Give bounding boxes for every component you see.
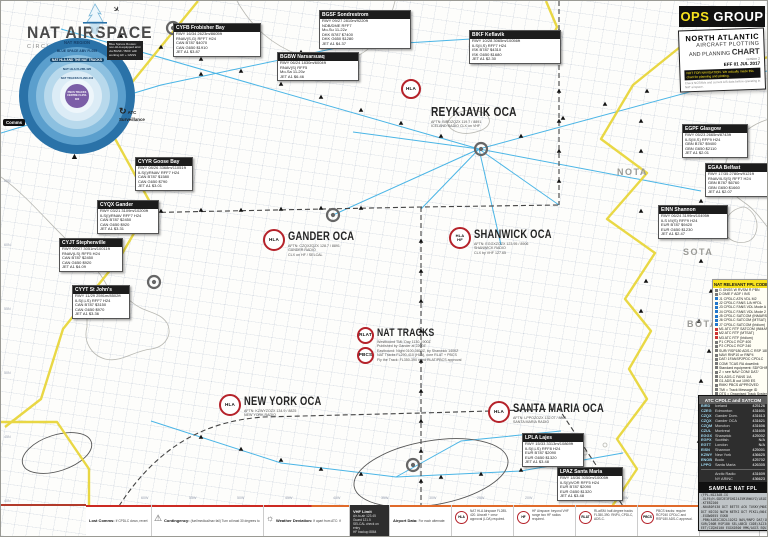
waypoint-triangle <box>159 209 164 213</box>
diagram-ring-label-1: BLUE SPACE ABV FL055 <box>57 49 97 53</box>
oca-subline: CLX by VHF 127.65 <box>474 251 569 255</box>
oca-text-block: GANDER OCAAFTN: CZQXZQZX 128.7 / 8891GAN… <box>288 229 373 257</box>
waypoint-triangle <box>645 89 650 93</box>
oca-text-block: SHANWICK OCAAFTN: EGGXZOZX 123.95 / 8906… <box>474 227 574 255</box>
graticule-lon-label: 50W <box>237 496 244 500</box>
badge-text: HF <box>457 238 463 242</box>
code-bullet-icon <box>715 332 718 335</box>
oca-badges: HLA <box>263 229 285 251</box>
airport-box-header: EGPF Glasgow <box>683 125 747 133</box>
badge-text: PBCS <box>643 516 652 519</box>
airport-box-line: JET A1 $4.37 <box>320 42 410 48</box>
oca-subtext: AFTN: BIRDZQZX 119.7 / 8891ICELAND RADIO… <box>431 120 526 129</box>
airport-info-box: LPLA LajesRWY 15/33 3313m/10869ftILS(I,L… <box>522 433 584 467</box>
diagram-ring-label-4: NAT TRACKS FL290-410 <box>61 76 93 80</box>
waypoint-triangle <box>199 208 204 212</box>
badge-text: HLA <box>225 403 235 408</box>
airport-box-header: CYYT St John's <box>73 286 129 294</box>
code-bullet-icon <box>715 319 718 322</box>
cpdlc-number: 426305 <box>750 463 765 468</box>
oca-title: NEW YORK OCA <box>244 394 322 408</box>
hla-badge: HLA <box>263 229 285 251</box>
blue-spruce-note: Blue Spruce Routes:non-HLA equipped airc… <box>107 41 143 60</box>
vor-center-dot <box>331 213 334 216</box>
waypoint-triangle <box>419 479 424 483</box>
badge-text: RLAT <box>581 516 589 519</box>
oca-text-block: NAT TRACKSWestbound TMI: Day 1130-1900ZP… <box>377 327 461 362</box>
waypoint-triangle <box>419 419 424 423</box>
waypoint-triangle <box>279 82 284 86</box>
cpdlc-panel-title: ATC CPDLC and SATCOM <box>699 396 767 404</box>
fpl-code-item: DAT/ 1FANSP2PDC CPDLC <box>713 357 767 361</box>
airport-info-box: BIKF KeflavikRWY 10/28 3065m/10056ftILS(… <box>469 30 561 64</box>
chart-legend: Lost Comms: If CPDLC down, revert to HF.… <box>86 505 768 537</box>
rlat-badge: RLAT <box>357 327 374 344</box>
oca-subline: SANTA MARIA RADIO <box>513 420 608 424</box>
airport-box-header: CYFB Frobisher Bay <box>174 24 260 32</box>
airport-box-line: JET A1 $3.48 <box>523 460 583 466</box>
waypoint-triangle <box>419 269 424 273</box>
waypoint-triangle <box>557 119 562 123</box>
legend-badge-rlat: RLATRLatSM: half-degree tracks FL350-390… <box>576 505 638 537</box>
airport-box-line: JET A1 $2.30 <box>470 57 560 63</box>
code-bullet-icon <box>715 388 718 391</box>
airport-box-line: JET A1 $3.87 <box>174 50 260 56</box>
fpl-code-item: J6 CPDLC SATCOM (MTSAT) <box>713 318 767 322</box>
fpl-codes-panel: NAT RELEVANT FPL CODES G GNSS W RVSM R P… <box>712 279 768 397</box>
oca-subtext: AFTN: LPPOZOZX 132.07 / 8861SANTA MARIA … <box>513 416 608 425</box>
code-bullet-icon <box>715 366 718 369</box>
vhf-box-line: HF backup 8864 <box>353 530 386 534</box>
cpdlc-row: NY ARINC436623 <box>699 477 767 482</box>
graticule-lat-label: 40N <box>4 499 11 503</box>
code-bullet-icon <box>715 297 718 300</box>
oca-badges: HLA <box>488 401 510 423</box>
airport-box-line: JET A1 $2.01 <box>683 151 747 157</box>
airport-box-header: CYYR Goose Bay <box>136 158 192 166</box>
cpdlc-satcom-panel: ATC CPDLC and SATCOM BIRDIceland425126CZ… <box>698 395 768 483</box>
graticule-lon-label: 25W <box>477 496 484 500</box>
waypoint-triangle <box>419 299 424 303</box>
waypoint-triangle <box>603 102 608 106</box>
airport-info-box: BGSF SondrestromRWY 09/27 2810m/9220ftND… <box>319 10 411 49</box>
graticule-lat-label: 60N <box>4 243 11 247</box>
oca-label-newyork: HLANEW YORK OCAAFTN: KZWYZOZX 134.9 / 88… <box>219 394 343 418</box>
airport-box-header: EINN Shannon <box>659 206 727 214</box>
waypoint-triangle <box>239 447 244 451</box>
graticule-lon-label: 20W <box>525 496 532 500</box>
hla-badge-icon: HLA <box>455 511 468 524</box>
map-canvas: NAT AIRSPACE CIRCLE OF ENTRY ✈ PBCS TRAC… <box>1 1 767 536</box>
badge-text: HLA <box>406 87 416 92</box>
oca-label-gander: HLAGANDER OCAAFTN: CZQXZQZX 128.7 / 8891… <box>263 229 373 257</box>
airport-box-line: JET A1 $3.01 <box>136 184 192 190</box>
legend-vhf-box: VHF LimitAir-to-air 123.45Guard 121.5SEL… <box>350 505 390 537</box>
waypoint-triangle <box>319 95 324 99</box>
airport-info-box: CYQX GanderRWY 03/21 3109m/10200ftILS(I)… <box>97 200 159 234</box>
oca-title: GANDER OCA <box>288 229 354 243</box>
oca-subtext: AFTN: KZWYZOZX 134.9 / 8825NEW YORK RADI… <box>244 409 339 418</box>
waypoint-triangle <box>279 207 284 211</box>
graticule-lon-label: 45W <box>285 496 292 500</box>
sample-fpl-title: SAMPLE NAT FPL <box>699 484 767 493</box>
oca-title: SANTA MARIA OCA <box>513 401 604 415</box>
airport-info-box: CYFB Frobisher BayRWY 16/34 2623m/8605ft… <box>173 23 261 57</box>
spiral-icon: ↻ <box>119 106 127 116</box>
airport-info-box: CYYT St John'sRWY 11/29 2591m/8502ftILS(… <box>72 285 130 319</box>
chart-title-card: NORTH ATLANTIC AIRCRAFT PLOTTING AND PLA… <box>678 28 766 93</box>
vhf-box-line: SELCAL check on entry <box>353 522 386 530</box>
oca-subline: Fly the Track: FL350-390 need RLAT/PBCS … <box>377 358 461 362</box>
legend-badge-hla: HLANAT HLA Airspace FL285-420. Aircraft … <box>452 505 514 537</box>
diagram-ring-label-2: NAT HLA AND THE NAT TRACKS <box>50 58 104 62</box>
coastline-ireland <box>725 207 757 243</box>
graticule-lon-label: 60W <box>141 496 148 500</box>
hf-badge-icon: HF <box>517 511 530 524</box>
waypoint-triangle <box>699 199 704 203</box>
fpl-line: EET/CZQX0100 EGGX0300 RMK/AGCS EQUIPPED) <box>699 526 767 530</box>
code-bullet-icon <box>715 341 718 344</box>
waypoint-triangle <box>399 121 404 125</box>
hla-badge: HLA <box>219 394 241 416</box>
graticule-lon-label: 40W <box>333 496 340 500</box>
oca-label-shanwick: HLAHFSHANWICK OCAAFTN: EGGXZOZX 123.95 /… <box>449 227 574 255</box>
airport-box-line: JET A1 $2.07 <box>706 190 768 196</box>
airport-info-box: CYYR Goose BayRWY 08/26 3368m/11051ftILS… <box>135 157 193 191</box>
cpdlc-row: LPPOSanta Maria426305 <box>699 463 767 468</box>
legend-contingency: ⚠Contingency: (fuel/medical/nav fail) Tu… <box>152 505 264 537</box>
code-bullet-icon <box>715 358 718 361</box>
waypoint-triangle <box>639 119 644 123</box>
fpl-code-item: J3 CPDLC FANS VDL Mode A <box>713 305 767 309</box>
airport-box-header: BGBW Narsarsuaq <box>278 53 358 61</box>
legend-title: Lost Comms: <box>89 518 116 523</box>
waypoint-triangle <box>419 449 424 453</box>
waypoint-triangle <box>439 134 444 138</box>
hla-standalone-badge-wrap: HLA <box>401 79 421 99</box>
legend-badge-text: NAT HLA Airspace FL285-420. Aircraft + c… <box>470 509 510 521</box>
airport-box-header: BIKF Keflavik <box>470 31 560 39</box>
oca-text-block: REYKJAVIK OCAAFTN: BIRDZQZX 119.7 / 8891… <box>431 104 541 129</box>
logo-group-text: GROUP <box>713 9 763 24</box>
airport-box-header: CYQX Gander <box>98 201 158 209</box>
oca-badges: RLATPBCS <box>357 327 374 364</box>
code-bullet-icon <box>715 336 718 339</box>
code-bullet-icon <box>715 384 718 387</box>
atc-surveillance-label: ↻ ATC Surveillance <box>119 106 155 122</box>
legend-badge-hf: HFHF Airspace: beyond VHF range two HF r… <box>514 505 576 537</box>
oca-badges: HLA <box>219 394 241 416</box>
graticule-lat-label: 45N <box>4 435 11 439</box>
waypoint-triangle <box>699 259 704 263</box>
graticule-lat-label: 65N <box>4 179 11 183</box>
waypoint-triangle <box>239 69 244 73</box>
badge-text: HLA <box>458 516 465 519</box>
diagram-ring-label-3: NAT HLA FL285-420 <box>63 67 91 71</box>
waypoint-triangle <box>199 72 204 76</box>
code-bullet-icon <box>715 371 718 374</box>
airport-box-line: JET A1 $4.09 <box>60 265 122 271</box>
note-line: working HF + GNSS <box>109 54 141 58</box>
code-bullet-icon <box>715 345 718 348</box>
region-label-nota: NOTA <box>617 167 648 177</box>
airport-data-title: Airport Data: <box>393 518 419 523</box>
oca-title: SHANWICK OCA <box>474 227 552 241</box>
airport-info-box: CYJT StephenvilleRWY 09/27 3051m/10011ft… <box>59 238 123 272</box>
entry-arrow-icon: ▲ <box>70 151 79 161</box>
waypoint-triangle <box>644 279 649 283</box>
airport-info-box: LPAZ Santa MariaRWY 18/36 3050m/10005ftI… <box>557 467 623 501</box>
code-bullet-icon <box>715 349 718 352</box>
code-bullet-icon <box>715 302 718 305</box>
legend-title: Contingency: <box>164 518 191 523</box>
code-bullet-icon <box>715 293 718 296</box>
legend-border-left <box>1 504 86 506</box>
oca-label-santamaria: HLASANTA MARIA OCAAFTN: LPPOZOZX 132.07 … <box>488 401 630 425</box>
legend-lost: Lost Comms: If CPDLC down, revert to HF.… <box>86 505 152 537</box>
code-bullet-icon <box>715 379 718 382</box>
oca-title: NAT TRACKS <box>377 327 443 339</box>
legend-badge-text: HF Airspace: beyond VHF range two HF rad… <box>532 509 572 521</box>
fpl-codes-title: NAT RELEVANT FPL CODES <box>713 280 767 288</box>
code-bullet-icon <box>715 310 718 313</box>
oca-text-block: NEW YORK OCAAFTN: KZWYZOZX 134.9 / 8825N… <box>244 394 343 418</box>
badge-text: HLA <box>269 238 279 243</box>
waypoint-triangle <box>239 208 244 212</box>
oca-subline: ICELAND RADIO CLX on VHF <box>431 124 526 128</box>
oca-subtext: Westbound TMI: Day 1130-1900ZPublished b… <box>377 340 461 362</box>
vor-center-dot <box>152 280 155 283</box>
airport-box-line: JET A1 $3.48 <box>558 494 622 500</box>
airport-info-box: EINN ShannonRWY 06/24 3199m/10495ftILS I… <box>658 205 728 239</box>
waypoint-triangle <box>557 149 562 153</box>
waypoint-triangle <box>561 116 566 120</box>
cpdlc-code <box>701 477 715 482</box>
oca-label-nat: RLATPBCSNAT TRACKSWestbound TMI: Day 113… <box>357 327 461 364</box>
chart-page: NAT AIRSPACE CIRCLE OF ENTRY ✈ PBCS TRAC… <box>0 0 768 537</box>
waypoint-triangle <box>199 57 204 61</box>
airport-box-header: LPLA Lajes <box>523 434 583 442</box>
hla-hf-badge: HLAHF <box>449 227 471 249</box>
cpdlc-number: 436623 <box>750 477 765 482</box>
code-bullet-icon <box>715 289 718 292</box>
graticule-lon-label: 55W <box>189 496 196 500</box>
code-bullet-icon <box>715 328 718 331</box>
code-bullet-icon <box>715 323 718 326</box>
airport-info-box: EGAA BelfastRWY 17/35 2780m/9121ftRNAV/I… <box>705 163 768 197</box>
code-bullet-icon <box>715 315 718 318</box>
waypoint-triangle <box>639 209 644 213</box>
oca-subline: CLX on HF / SELCAL <box>288 253 373 257</box>
graticule-lat-label: 55N <box>4 307 11 311</box>
airport-box-header: CYJT Stephenville <box>60 239 122 247</box>
oca-title: REYKJAVIK OCA <box>431 104 517 119</box>
cpdlc-name: Santa Maria <box>715 463 750 468</box>
cpdlc-name: NY ARINC <box>715 477 750 482</box>
hla-badge: HLA <box>488 401 510 423</box>
badge-text: PBCS <box>359 353 373 358</box>
vor-center-dot <box>479 147 482 150</box>
badge-text: HLA <box>494 410 504 415</box>
diagram-ring-label-0: NAT REGION <box>64 40 90 45</box>
badge-text: HF <box>521 516 525 519</box>
card-disclaimer-2: Check NOTAMs and current AIS data before… <box>685 79 761 90</box>
airport-box-line: JET A1 $3.31 <box>98 227 158 233</box>
diagram-center-pbcs: PBCS TRACKS CENTRE FL350-390 <box>65 84 89 108</box>
code-bullet-icon <box>715 354 718 357</box>
oca-text-block: SANTA MARIA OCAAFTN: LPPOZOZX 132.07 / 8… <box>513 401 630 425</box>
waypoint-triangle <box>699 379 704 383</box>
airport-box-line: JET A1 $3.36 <box>73 312 129 318</box>
warning-icon: ⚠ <box>154 513 162 524</box>
oca-badges: HLAHF <box>449 227 471 249</box>
graticule-lat-label: 50N <box>4 371 11 375</box>
brand-block: OPS GROUP NORTH ATLANTIC AIRCRAFT PLOTTI… <box>679 6 765 91</box>
diagram-center-label: PBCS TRACKS CENTRE FL350-390 <box>65 91 89 100</box>
sun-icon: ☼ <box>266 513 274 523</box>
waypoint-triangle <box>557 179 562 183</box>
graticule-lon-label: 35W <box>381 496 388 500</box>
oca-subline: NEW YORK RADIO <box>244 413 339 417</box>
waypoint-triangle <box>319 206 324 210</box>
waypoint-triangle <box>557 89 562 93</box>
waypoint-triangle <box>279 458 284 462</box>
logo-ops-text: OPS <box>680 9 709 24</box>
code-bullet-icon <box>715 375 718 378</box>
legend-title: Weather Deviation: <box>276 518 313 523</box>
airport-box-header: LPAZ Santa Maria <box>558 468 622 476</box>
airport-box-header: EGAA Belfast <box>706 164 768 172</box>
hla-badge: HLA <box>401 79 421 99</box>
legend-badge-text: RLatSM: half-degree tracks FL350-390. RN… <box>594 509 634 521</box>
comms-arrow-label: Comms <box>3 119 25 126</box>
oca-subtext: AFTN: EGGXZOZX 123.95 / 8906SHANWICK RAD… <box>474 242 569 255</box>
oca-subtext: AFTN: CZQXZQZX 128.7 / 8891GANDER RADIOC… <box>288 244 373 257</box>
waypoint-triangle <box>479 472 484 476</box>
airport-info-box: EGPF GlasgowRWY 05/23 2665m/8743ftILS(II… <box>682 124 748 158</box>
cpdlc-divider <box>701 469 765 470</box>
sample-fpl-panel: SAMPLE NAT FPL (FPL-N123AB-IG-GLF6/H-SDE… <box>698 483 768 531</box>
airport-box-line: JET A1 $2.47 <box>659 232 727 238</box>
airport-info-box: BGBW NarsarsuaqRWY 06/24 1830m/6004ftRNA… <box>277 52 359 81</box>
legend-airport-data: Airport Data: For each alternate: approx… <box>390 505 452 537</box>
waypoint-triangle <box>519 468 524 472</box>
legend-badge-pbcs: PBCSPBCS tracks: require RCP240 CPDLC an… <box>638 505 700 537</box>
waypoint-triangle <box>419 239 424 243</box>
pbcs-badge: PBCS <box>357 347 374 364</box>
badge-text: RLAT <box>359 333 372 338</box>
waypoint-triangle <box>639 309 644 313</box>
vor-center-dot <box>411 463 414 466</box>
airport-box-header: BGSF Sondrestrom <box>320 11 410 19</box>
code-bullet-icon <box>715 306 718 309</box>
waypoint-triangle <box>359 108 364 112</box>
legend-badge-text: PBCS tracks: require RCP240 CPDLC and RS… <box>656 509 696 521</box>
region-label-sota: SOTA <box>683 247 713 257</box>
waypoint-triangle <box>639 149 644 153</box>
waypoint-triangle <box>419 389 424 393</box>
code-bullet-icon <box>715 362 718 365</box>
graticule-lon-label: 30W <box>429 496 436 500</box>
airport-box-line: JET A1 $6.46 <box>278 75 358 81</box>
iceberg-icon <box>81 2 109 38</box>
legend-weather: ☼Weather Deviation: If apart from ATC: i… <box>264 505 350 537</box>
pbcs-badge-icon: PBCS <box>641 511 654 524</box>
waypoint-triangle <box>707 349 712 353</box>
opsgroup-logo: OPS GROUP <box>679 6 765 27</box>
waypoint-triangle <box>519 134 524 138</box>
oca-label-reykjavik: REYKJAVIK OCAAFTN: BIRDZQZX 119.7 / 8891… <box>431 104 541 129</box>
rlat-badge-icon: RLAT <box>579 511 592 524</box>
cpdlc-code: LPPO <box>701 463 715 468</box>
